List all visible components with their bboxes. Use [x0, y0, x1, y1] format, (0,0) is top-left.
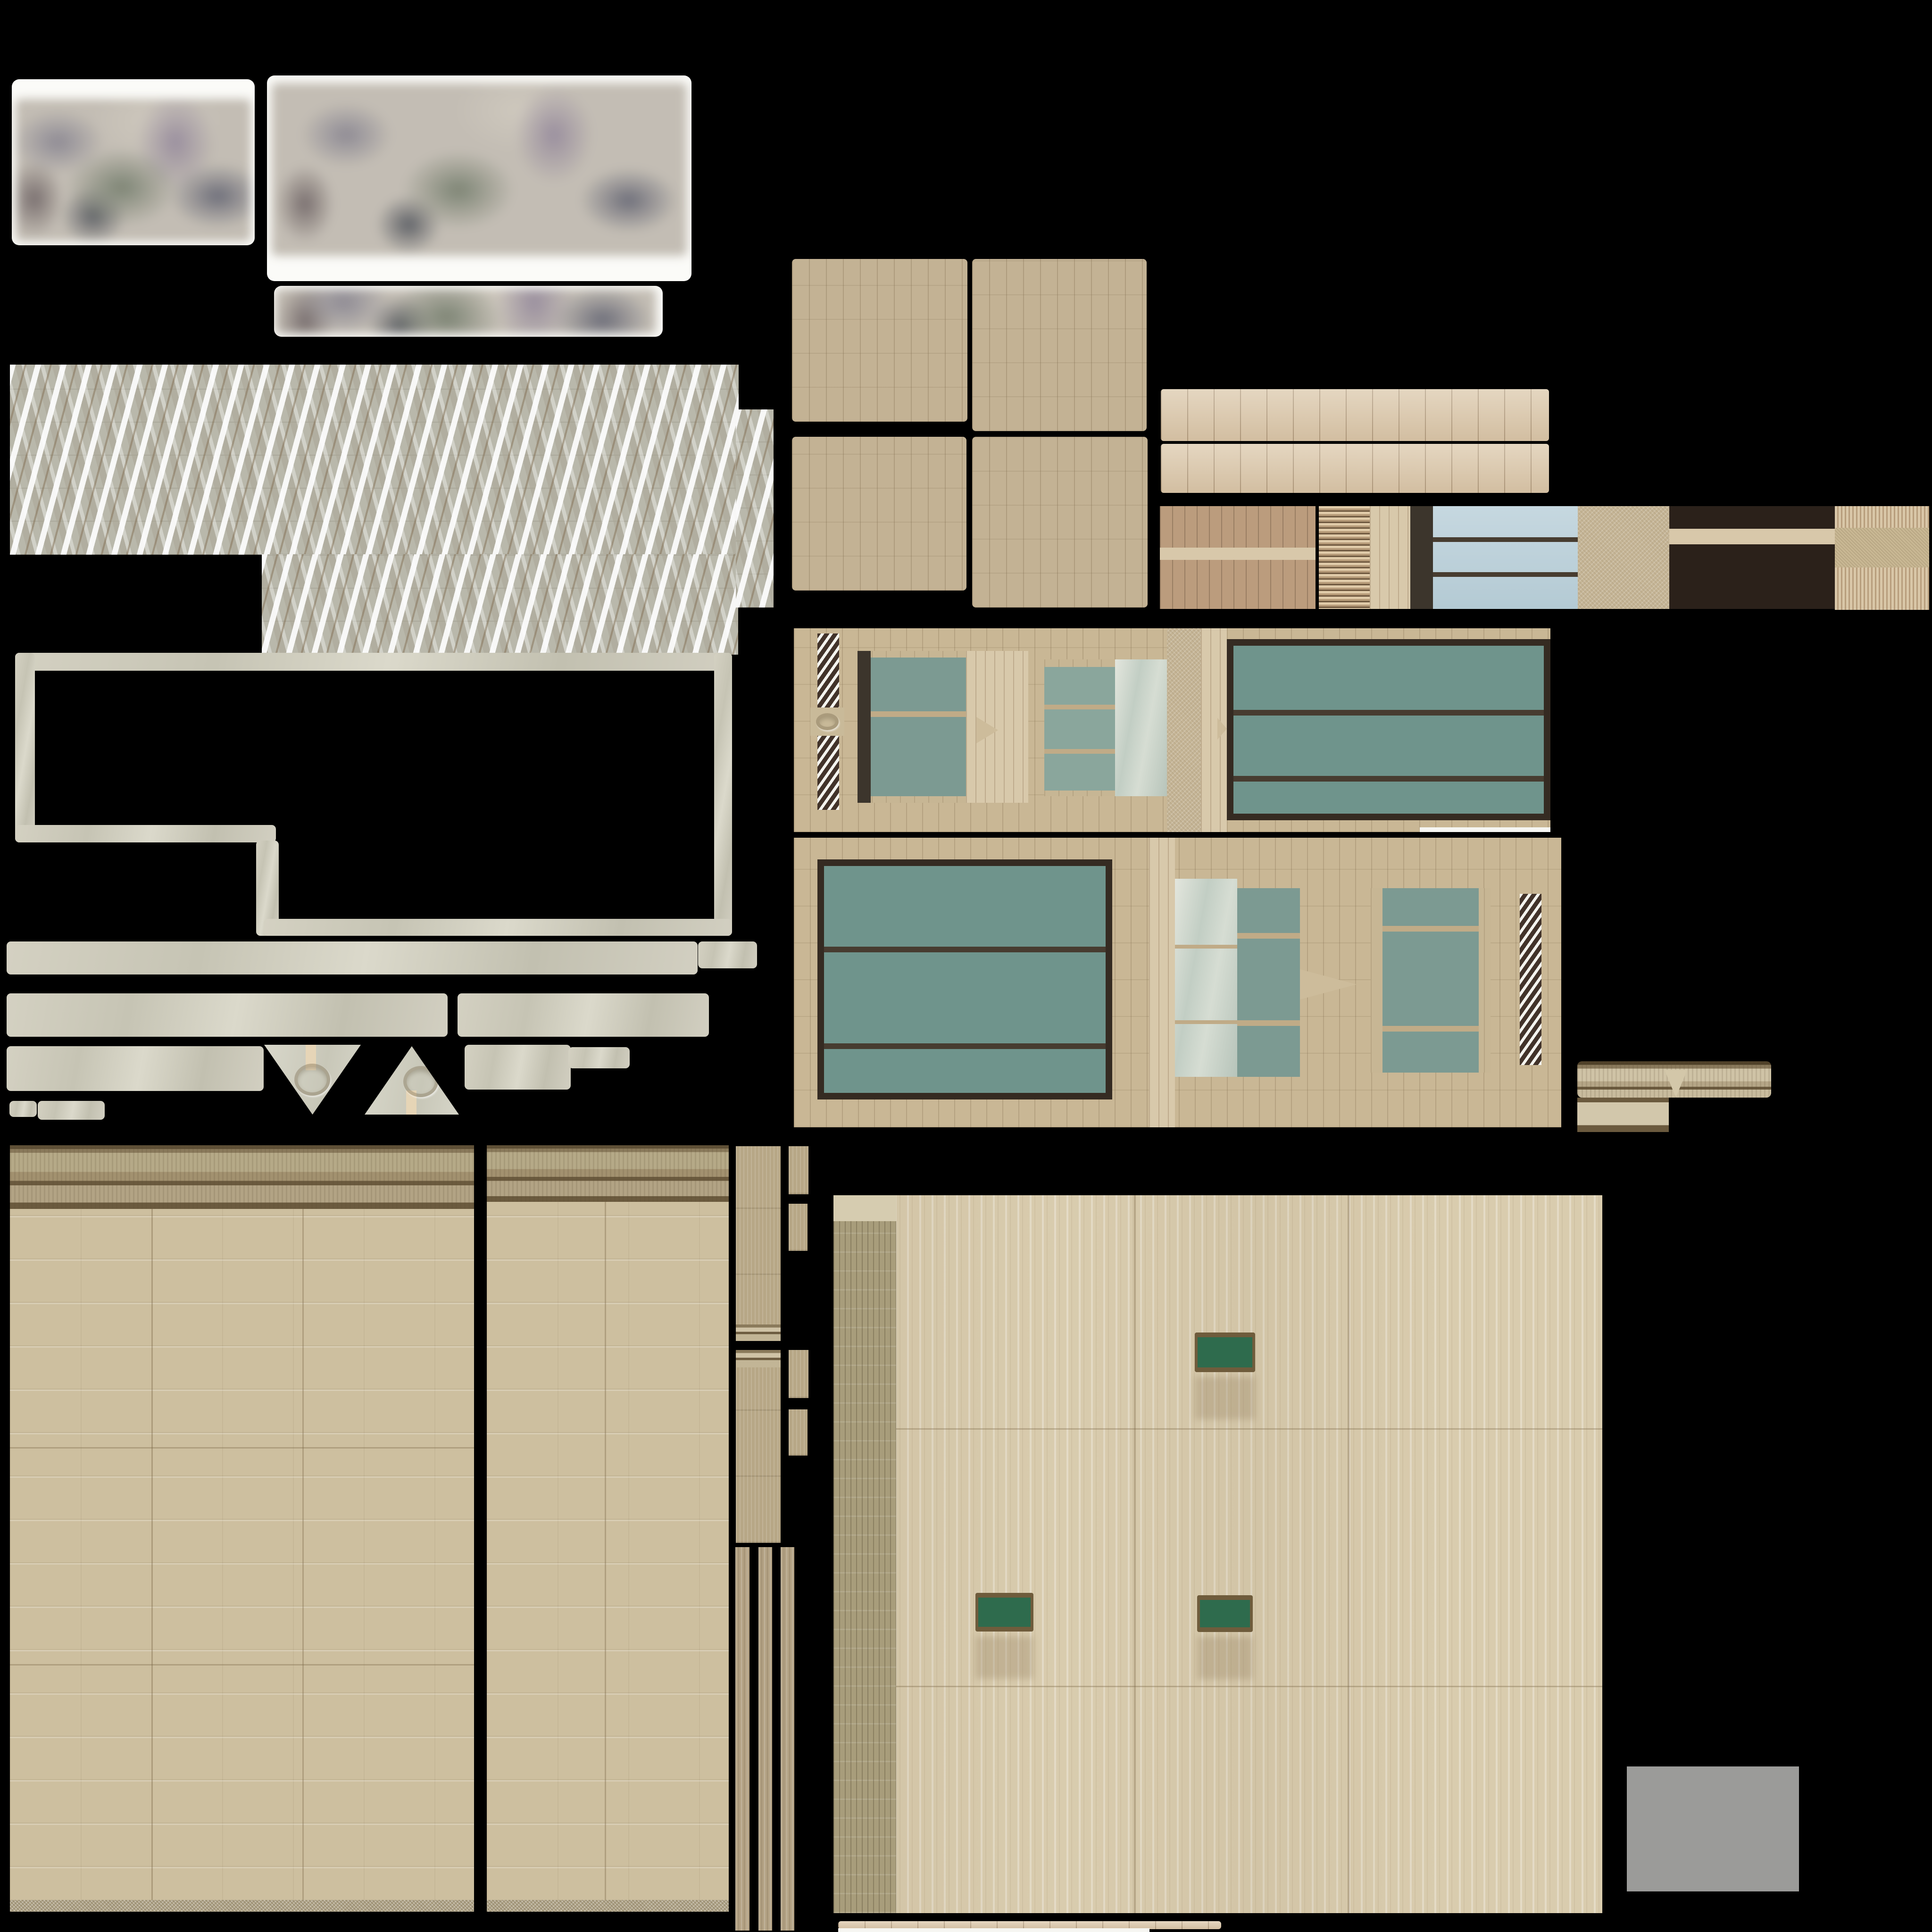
stone-pilaster: [1167, 628, 1201, 832]
roof-shingles-right: [736, 409, 774, 608]
ledge-tan-crossband: [1669, 529, 1835, 544]
pier-molding: [736, 1324, 781, 1341]
ledge-panel-striped: [1160, 506, 1316, 609]
wall-column-1: [10, 1145, 474, 1912]
fascia-strip-3b: [465, 1045, 571, 1090]
roof-shingles-lower: [262, 554, 738, 655]
jamb-strip: [1201, 628, 1227, 832]
wall-seam: [10, 1664, 474, 1666]
gable-triangle-up: [365, 1046, 459, 1115]
facade-strip-2-wall: [794, 838, 1561, 1127]
awning-hinge-tab: [1300, 969, 1357, 999]
pier-square-c: [789, 1350, 808, 1398]
wall-seam: [1134, 1195, 1136, 1913]
pier-square-a: [789, 1146, 808, 1194]
plank-strip-2: [1161, 444, 1549, 493]
ledge-ribbed-section: [1835, 506, 1929, 610]
texture-atlas: [0, 0, 1932, 1932]
window-mullion: [1382, 1026, 1479, 1032]
photo-fragment-strip: [274, 286, 663, 337]
big-wall-bottom-white: [838, 1928, 1149, 1932]
wall-seam: [896, 1686, 1602, 1687]
wall-cornice: [10, 1145, 474, 1209]
tile-square-1: [792, 259, 967, 422]
awning-flap-glass: [1115, 659, 1167, 796]
frame-outline-left: [15, 653, 35, 842]
pier-strip-upper: [736, 1146, 781, 1341]
shutter-louver-column: [1520, 894, 1541, 1065]
wall-base: [487, 1900, 729, 1912]
fascia-strip-4b: [38, 1101, 105, 1120]
panel-mullion: [1233, 776, 1544, 782]
window-mullion: [1237, 933, 1300, 939]
window-mullion: [1237, 1020, 1300, 1026]
photo-right-image: [272, 83, 687, 256]
awning-window-1: [858, 651, 1028, 803]
frame-outline-bottom: [264, 919, 732, 936]
wall-base: [10, 1900, 474, 1912]
frame-outline-mid-horizontal: [15, 825, 276, 842]
green-window-2: [975, 1593, 1033, 1632]
flap-mullion: [1175, 945, 1237, 949]
ledge-pale-edge: [1370, 506, 1410, 609]
ledge-rough-band: [1835, 528, 1929, 567]
photo-fragment-right: [267, 75, 691, 281]
wall-column-2: [487, 1145, 729, 1912]
window-mullion: [1044, 705, 1115, 709]
fascia-strip-1b: [698, 941, 757, 968]
hinge-tab: [1217, 718, 1227, 740]
circle-engraving: [816, 713, 839, 730]
roof-shingles-upper: [10, 365, 739, 555]
fascia-strip-2b: [458, 993, 709, 1037]
gable-oculus: [403, 1066, 438, 1097]
wall-cornice: [487, 1145, 729, 1202]
frame-outline-top: [15, 653, 732, 671]
photo-strip-image: [275, 289, 656, 334]
pier-square-d: [789, 1409, 808, 1456]
pale-edge-strip: [1149, 838, 1175, 1127]
ledge-dark-section: [1669, 506, 1835, 609]
photo-left-image: [16, 99, 251, 241]
window-mullion: [871, 711, 966, 717]
wall-seam: [10, 1447, 474, 1449]
facade-strip-1-wall: [794, 628, 1550, 832]
flap-mullion: [1175, 1020, 1237, 1024]
window-glass: [1044, 667, 1115, 791]
cornice-tab: [1665, 1070, 1687, 1098]
fascia-strip-1: [7, 941, 698, 974]
tile-square-3: [792, 437, 966, 591]
ledge-corrugated-shutter: [1319, 506, 1370, 609]
tile-square-2: [972, 259, 1147, 431]
wall-seam: [605, 1202, 606, 1900]
pier-square-b: [789, 1204, 808, 1251]
awning-window-2: [1044, 659, 1167, 796]
wall-seam: [151, 1209, 153, 1900]
wall-seam: [302, 1209, 304, 1900]
cornice-piece-long: [1577, 1061, 1771, 1098]
wall-seam: [1348, 1195, 1349, 1913]
pilaster-cap: [833, 1195, 896, 1221]
green-window-1: [1195, 1332, 1255, 1372]
recessed-window-glass: [1237, 888, 1300, 1077]
fascia-strip-4a: [9, 1101, 37, 1117]
gable-triangle-down: [264, 1045, 361, 1115]
ledge-blue-window: [1410, 506, 1578, 609]
frame-outline-right: [714, 653, 732, 936]
awning-window-3: [1371, 888, 1491, 1073]
panel-mullion: [824, 1043, 1106, 1049]
window-jamb: [1410, 506, 1433, 609]
window-glass: [871, 658, 966, 796]
awning-flap-glass: [1175, 879, 1237, 1077]
wall-pilaster: [833, 1195, 896, 1913]
window-jamb: [858, 651, 871, 803]
gray-swatch: [1627, 1766, 1799, 1891]
window-shadow: [1195, 1377, 1255, 1419]
cornice-block-b: [1623, 1098, 1669, 1132]
ledge-stone-pilaster: [1578, 506, 1669, 609]
green-window-3: [1197, 1595, 1253, 1632]
window-mullion: [1433, 572, 1578, 577]
panel-mullion: [1233, 710, 1544, 716]
window-shadow: [1197, 1637, 1253, 1679]
fascia-strip-3c: [568, 1047, 630, 1068]
shutter-circle-block: [810, 708, 844, 736]
thin-strip-3: [781, 1547, 794, 1931]
window-mullion: [1044, 749, 1115, 754]
window-glass: [1382, 888, 1479, 1073]
photo-fragment-left: [12, 79, 255, 245]
tile-square-4: [972, 437, 1148, 608]
panel-mullion: [824, 947, 1106, 952]
fascia-strip-2a: [7, 993, 448, 1037]
gable-oculus: [294, 1064, 330, 1096]
pier-strip-lower: [736, 1350, 781, 1543]
curtain-glass-panel-1: [1227, 639, 1550, 820]
window-shadow: [975, 1636, 1033, 1679]
fascia-strip-3a: [7, 1046, 264, 1091]
plank-strip-1: [1161, 389, 1549, 441]
curtain-glass-panel-2: [817, 859, 1112, 1099]
pier-molding: [736, 1350, 781, 1367]
thin-strip-1: [735, 1547, 749, 1931]
awning-flap: [966, 651, 1028, 803]
wall-seam: [896, 1428, 1602, 1430]
cornice-block-a: [1577, 1098, 1623, 1132]
big-wall-panel: [833, 1195, 1602, 1913]
white-sill-sliver: [1420, 827, 1550, 832]
thin-strip-2: [758, 1547, 772, 1931]
window-mullion: [1433, 537, 1578, 542]
ledge-light-band: [1160, 548, 1316, 560]
window-mullion: [1382, 926, 1479, 932]
